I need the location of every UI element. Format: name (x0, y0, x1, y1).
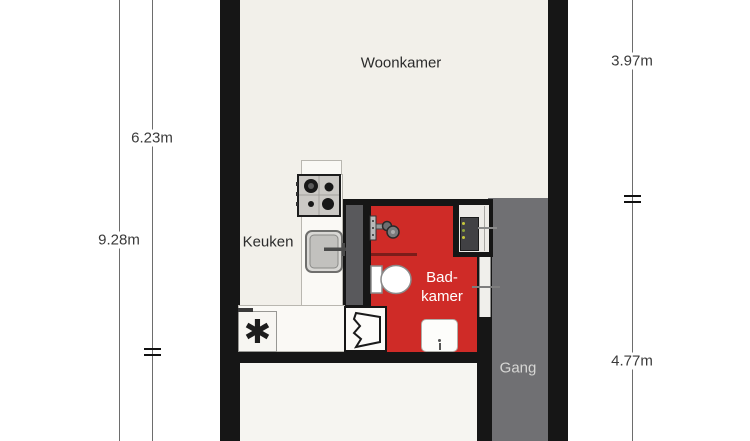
dimension-label-9-28: 9.28m (95, 232, 143, 249)
room-label-woonkamer: Woonkamer (361, 55, 442, 72)
dimension-line-left-outer (119, 0, 120, 441)
freezer-asterisk-icon: ✱ (244, 313, 272, 350)
kitchen-sink-icon (304, 229, 348, 274)
floorplan: ✱ Woonkamer Keu (0, 0, 750, 441)
washbasin-box (421, 319, 458, 352)
shower-partition-line (371, 253, 417, 256)
shower-tray-icon (344, 306, 387, 352)
boiler-indicator (462, 236, 465, 239)
dimension-tick (144, 348, 161, 350)
dimension-tick (144, 354, 161, 356)
freezer-handle (238, 308, 253, 312)
boiler-indicator (462, 229, 465, 232)
badkamer-label-line1: Bad- (421, 268, 463, 287)
wall-bottom (220, 352, 492, 363)
badkamer-label-line2: kamer (421, 287, 463, 306)
dimension-tick (624, 201, 641, 203)
shower-mixer-icon (368, 213, 400, 245)
boiler-pipe-line (478, 227, 497, 229)
dimension-label-3-97: 3.97m (608, 53, 656, 70)
bottom-room-floor (230, 353, 477, 441)
dimension-line-left-inner (152, 0, 153, 441)
room-label-badkamer: Bad- kamer (421, 268, 463, 306)
wall-left-outer (220, 0, 240, 441)
washbasin-tap-mark (439, 343, 441, 350)
shaft-duct (346, 205, 363, 305)
hallway-floor (488, 198, 548, 441)
wall-right-outer (548, 0, 568, 441)
dimension-tick (624, 195, 641, 197)
door-swing-line (472, 286, 500, 288)
stove-icon (296, 174, 342, 217)
dimension-label-4-77: 4.77m (608, 353, 656, 370)
boiler-indicator (462, 222, 465, 225)
room-label-gang: Gang (500, 360, 537, 377)
dimension-label-6-23: 6.23m (128, 130, 176, 147)
toilet-icon (369, 263, 414, 296)
room-label-keuken: Keuken (243, 234, 294, 251)
freezer-box: ✱ (238, 311, 277, 352)
washbasin-drain (438, 339, 441, 342)
